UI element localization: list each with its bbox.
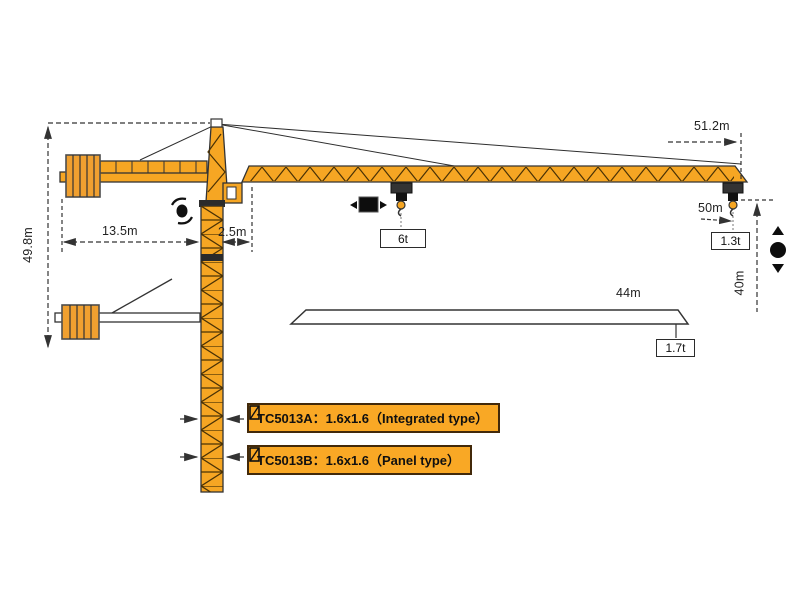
counterweight-blocks	[62, 305, 99, 339]
mast-section-icon	[249, 405, 260, 420]
load-radius-dim: 50m	[698, 201, 723, 215]
dim-50m	[701, 219, 731, 221]
operator-cab	[223, 183, 242, 203]
mast-section-icon	[249, 447, 260, 462]
load-range-beam	[291, 310, 688, 338]
variant-b-label: TC5013B：1.6x1.6（Panel type）	[247, 445, 472, 475]
crane-diagram: 49.8m 13.5m 2.5m 51.2m 50m 40m 44m 6t 1.…	[0, 0, 800, 600]
variant-b-text: TC5013B：1.6x1.6（Panel type）	[257, 450, 460, 469]
hook-block	[397, 201, 405, 209]
tip-load-value: 1.3t	[720, 234, 740, 248]
counterweight-blocks	[66, 155, 100, 197]
lower-counterweight-assembly	[55, 279, 200, 339]
variant-a-label: TC5013A：1.6x1.6（Integrated type）	[247, 403, 500, 433]
apex-pin	[211, 119, 222, 127]
climbing-collar	[201, 254, 223, 261]
crane-drawing	[0, 0, 800, 600]
mid-radius-dim: 44m	[616, 286, 641, 300]
counter-jib	[60, 155, 208, 197]
hook-up-down-icon	[770, 226, 786, 273]
hook-block	[729, 201, 737, 209]
mast	[199, 200, 225, 492]
mast-offset-dim: 2.5m	[218, 225, 247, 239]
tip-load-box: 1.3t	[711, 232, 750, 250]
variant-a-text: TC5013A：1.6x1.6（Integrated type）	[257, 408, 488, 427]
mid-load-value: 1.7t	[665, 341, 685, 355]
hook-height-dim: 40m	[732, 271, 746, 296]
trolley-left-right-icon	[350, 197, 387, 212]
counter-radius-dim: 13.5m	[102, 224, 138, 238]
trolley-mid	[391, 183, 412, 229]
total-height-dim: 49.8m	[21, 227, 35, 263]
mid-load-box: 1.7t	[656, 339, 695, 357]
max-load-box: 6t	[380, 229, 426, 248]
tip-radius-dim: 51.2m	[694, 119, 730, 133]
tie-cables	[140, 124, 741, 167]
max-load-value: 6t	[398, 232, 408, 246]
slewing-rotation-icon	[172, 199, 192, 224]
trolley-tip	[723, 183, 743, 231]
jib	[242, 166, 747, 182]
